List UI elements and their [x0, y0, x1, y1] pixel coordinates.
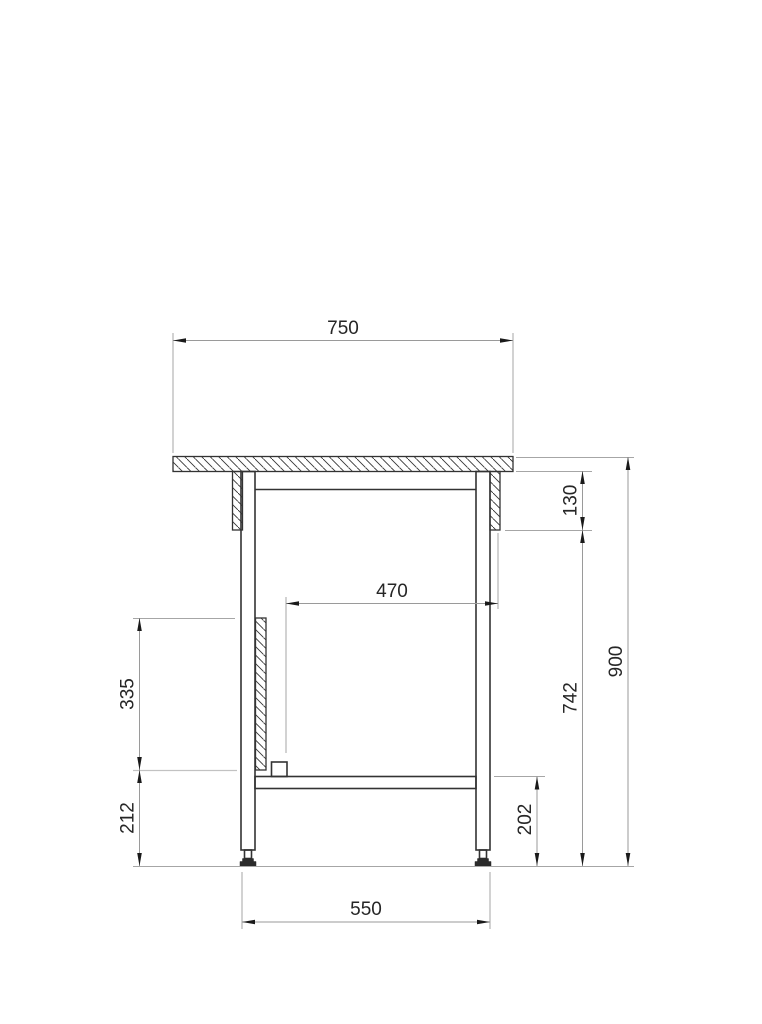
technical-drawing-canvas: 750 470 550 130 742 900 202 335 212 [0, 0, 762, 1024]
dim-leg-span [242, 920, 490, 925]
bracket-strip-section [256, 618, 267, 770]
dim-overall-height-label: 900 [606, 646, 627, 678]
right-foot-stem [480, 850, 487, 859]
table-geometry [173, 457, 513, 867]
dimension-lines [137, 338, 630, 924]
extension-lines [133, 333, 634, 929]
dim-tabletop-width-label: 750 [327, 318, 359, 339]
drawing-page: 750 470 550 130 742 900 202 335 212 [0, 0, 762, 1024]
right-leg [476, 472, 490, 851]
left-foot [240, 850, 256, 866]
right-apron-section [490, 472, 500, 531]
tabletop-section [173, 457, 513, 472]
right-foot-pad [475, 859, 491, 867]
dim-bracket-height-label: 335 [118, 678, 139, 710]
lower-shelf [255, 777, 476, 789]
dim-shelf-to-floor-label: 202 [515, 804, 536, 836]
dim-inner-clear-width-label: 470 [376, 581, 408, 602]
dim-leg-span-label: 550 [350, 899, 382, 920]
left-foot-stem [245, 850, 252, 859]
dim-apron-height-label: 130 [561, 485, 582, 517]
left-foot-pad [240, 859, 256, 867]
right-foot [475, 850, 491, 866]
clip-block [272, 762, 288, 777]
dim-lower-leg-height-label: 212 [118, 802, 139, 834]
dim-under-top-height-label: 742 [561, 682, 582, 714]
